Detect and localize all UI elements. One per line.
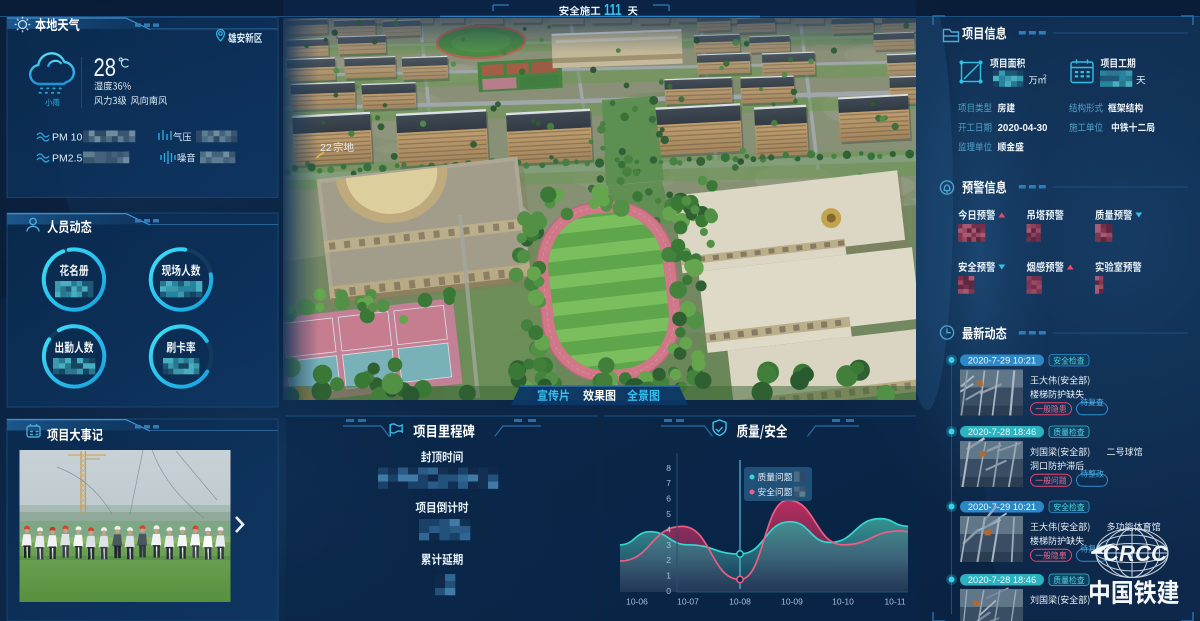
svg-text:4: 4 — [666, 524, 671, 534]
svg-text:2020-7-28 18:46: 2020-7-28 18:46 — [968, 427, 1036, 437]
svg-text:2020-7-29 10:21: 2020-7-29 10:21 — [968, 356, 1036, 366]
svg-text:0: 0 — [666, 586, 671, 596]
svg-text:8: 8 — [666, 463, 671, 473]
svg-text:2: 2 — [1043, 74, 1047, 81]
svg-text:PM2.5: PM2.5 — [52, 153, 83, 165]
svg-text:2020-7-28 18:46: 2020-7-28 18:46 — [968, 575, 1036, 585]
svg-text:10-11: 10-11 — [884, 597, 905, 607]
svg-text:2020-7-29 10:21: 2020-7-29 10:21 — [968, 502, 1036, 512]
svg-text:10-06: 10-06 — [626, 597, 648, 607]
svg-text:1: 1 — [666, 571, 671, 581]
svg-text:5: 5 — [666, 509, 671, 519]
svg-text:CRCC: CRCC — [1103, 541, 1168, 566]
svg-text:10-09: 10-09 — [781, 597, 803, 607]
svg-text:10-07: 10-07 — [677, 597, 699, 607]
svg-text:7: 7 — [666, 478, 671, 488]
svg-text:111: 111 — [604, 2, 622, 19]
svg-text:2020-04-30: 2020-04-30 — [998, 123, 1049, 134]
svg-text:3: 3 — [666, 540, 671, 550]
svg-text:10-10: 10-10 — [832, 597, 854, 607]
svg-text:6: 6 — [666, 494, 671, 504]
svg-text:28: 28 — [94, 54, 117, 82]
svg-text:10-08: 10-08 — [729, 597, 751, 607]
svg-text:PM 10: PM 10 — [52, 132, 83, 144]
svg-text:2: 2 — [666, 555, 671, 565]
